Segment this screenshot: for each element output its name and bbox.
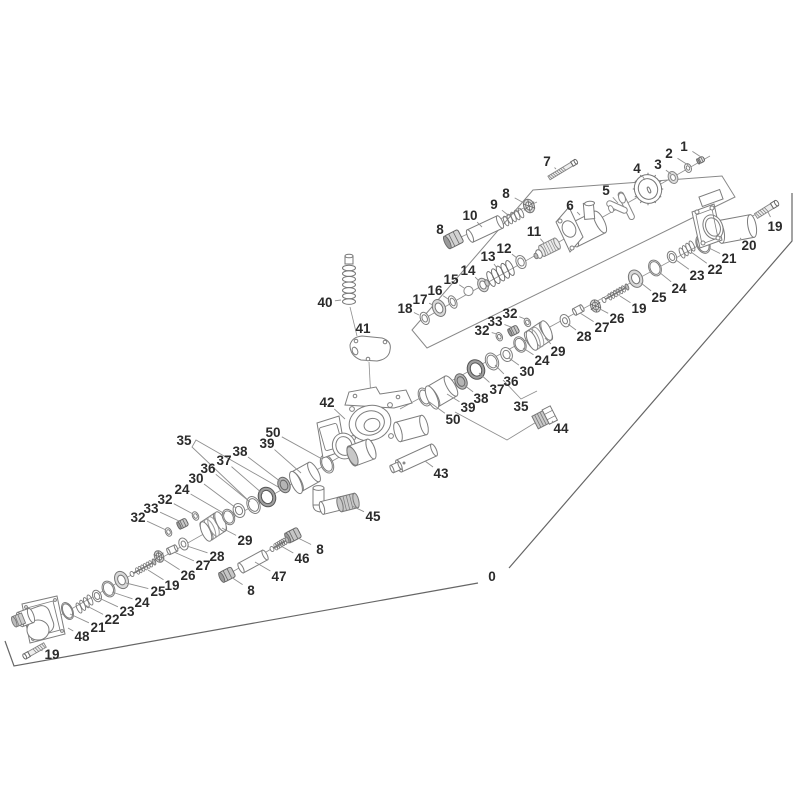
svg-text:16: 16 xyxy=(427,283,443,298)
svg-text:39: 39 xyxy=(460,400,475,415)
svg-text:14: 14 xyxy=(460,263,476,278)
svg-text:32: 32 xyxy=(474,323,489,338)
svg-text:13: 13 xyxy=(480,249,496,264)
svg-text:3: 3 xyxy=(654,157,662,172)
svg-text:28: 28 xyxy=(209,549,225,564)
svg-text:48: 48 xyxy=(74,629,90,644)
svg-text:37: 37 xyxy=(216,453,231,468)
svg-text:20: 20 xyxy=(741,238,756,253)
svg-text:26: 26 xyxy=(609,311,625,326)
svg-text:46: 46 xyxy=(294,551,310,566)
svg-text:6: 6 xyxy=(566,198,574,213)
svg-text:8: 8 xyxy=(502,186,510,201)
svg-text:19: 19 xyxy=(631,301,646,316)
svg-text:40: 40 xyxy=(317,295,332,310)
svg-text:39: 39 xyxy=(259,436,274,451)
svg-text:15: 15 xyxy=(443,272,459,287)
svg-text:4: 4 xyxy=(633,161,641,176)
svg-text:21: 21 xyxy=(721,251,737,266)
svg-text:25: 25 xyxy=(651,290,667,305)
svg-text:24: 24 xyxy=(134,595,150,610)
svg-text:19: 19 xyxy=(767,219,782,234)
svg-text:0: 0 xyxy=(488,569,496,584)
svg-text:27: 27 xyxy=(594,320,609,335)
svg-text:23: 23 xyxy=(119,604,135,619)
svg-text:8: 8 xyxy=(316,542,324,557)
svg-text:42: 42 xyxy=(319,395,334,410)
svg-text:35: 35 xyxy=(513,399,529,414)
svg-text:36: 36 xyxy=(503,374,519,389)
svg-text:32: 32 xyxy=(157,492,172,507)
svg-text:22: 22 xyxy=(104,612,119,627)
svg-text:30: 30 xyxy=(188,471,203,486)
svg-text:47: 47 xyxy=(271,569,286,584)
svg-text:44: 44 xyxy=(553,421,569,436)
svg-text:25: 25 xyxy=(150,584,166,599)
svg-text:24: 24 xyxy=(671,281,687,296)
svg-text:38: 38 xyxy=(232,444,248,459)
svg-text:12: 12 xyxy=(496,241,511,256)
svg-text:28: 28 xyxy=(576,329,592,344)
svg-text:33: 33 xyxy=(143,501,159,516)
svg-text:45: 45 xyxy=(365,509,381,524)
svg-text:11: 11 xyxy=(527,224,542,239)
svg-text:19: 19 xyxy=(44,647,59,662)
svg-text:17: 17 xyxy=(412,292,427,307)
svg-text:24: 24 xyxy=(174,482,190,497)
svg-text:50: 50 xyxy=(445,412,460,427)
svg-text:26: 26 xyxy=(180,568,196,583)
svg-text:8: 8 xyxy=(247,583,255,598)
svg-text:22: 22 xyxy=(707,262,722,277)
svg-text:2: 2 xyxy=(665,146,673,161)
svg-text:27: 27 xyxy=(195,558,210,573)
svg-text:41: 41 xyxy=(355,321,371,336)
svg-text:33: 33 xyxy=(487,314,503,329)
svg-text:35: 35 xyxy=(176,433,192,448)
svg-text:19: 19 xyxy=(164,578,179,593)
svg-text:32: 32 xyxy=(130,510,145,525)
svg-text:43: 43 xyxy=(433,466,449,481)
svg-text:18: 18 xyxy=(397,301,413,316)
svg-text:21: 21 xyxy=(90,620,106,635)
svg-text:8: 8 xyxy=(436,222,444,237)
svg-text:37: 37 xyxy=(489,382,504,397)
svg-text:9: 9 xyxy=(490,197,498,212)
svg-text:32: 32 xyxy=(502,306,517,321)
svg-text:38: 38 xyxy=(473,391,489,406)
svg-text:23: 23 xyxy=(689,268,705,283)
svg-text:10: 10 xyxy=(462,208,477,223)
svg-text:7: 7 xyxy=(543,154,551,169)
svg-text:5: 5 xyxy=(602,183,610,198)
svg-text:1: 1 xyxy=(680,139,688,154)
svg-text:24: 24 xyxy=(534,353,550,368)
svg-text:29: 29 xyxy=(550,344,565,359)
svg-text:30: 30 xyxy=(519,364,534,379)
svg-text:29: 29 xyxy=(237,533,252,548)
